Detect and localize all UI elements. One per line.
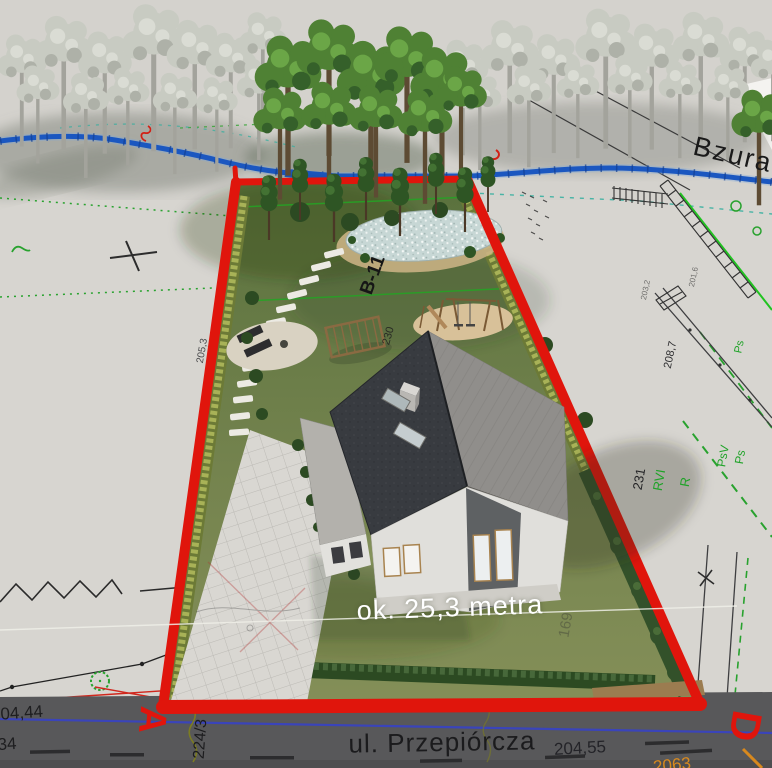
window xyxy=(495,530,513,581)
window xyxy=(473,535,491,582)
site-plan-visualization: Bzura ul. Przepiórcza ok. 25,3 metra B-1… xyxy=(0,0,772,768)
window xyxy=(403,545,420,574)
window xyxy=(383,548,400,577)
scene-graphics xyxy=(0,0,772,768)
